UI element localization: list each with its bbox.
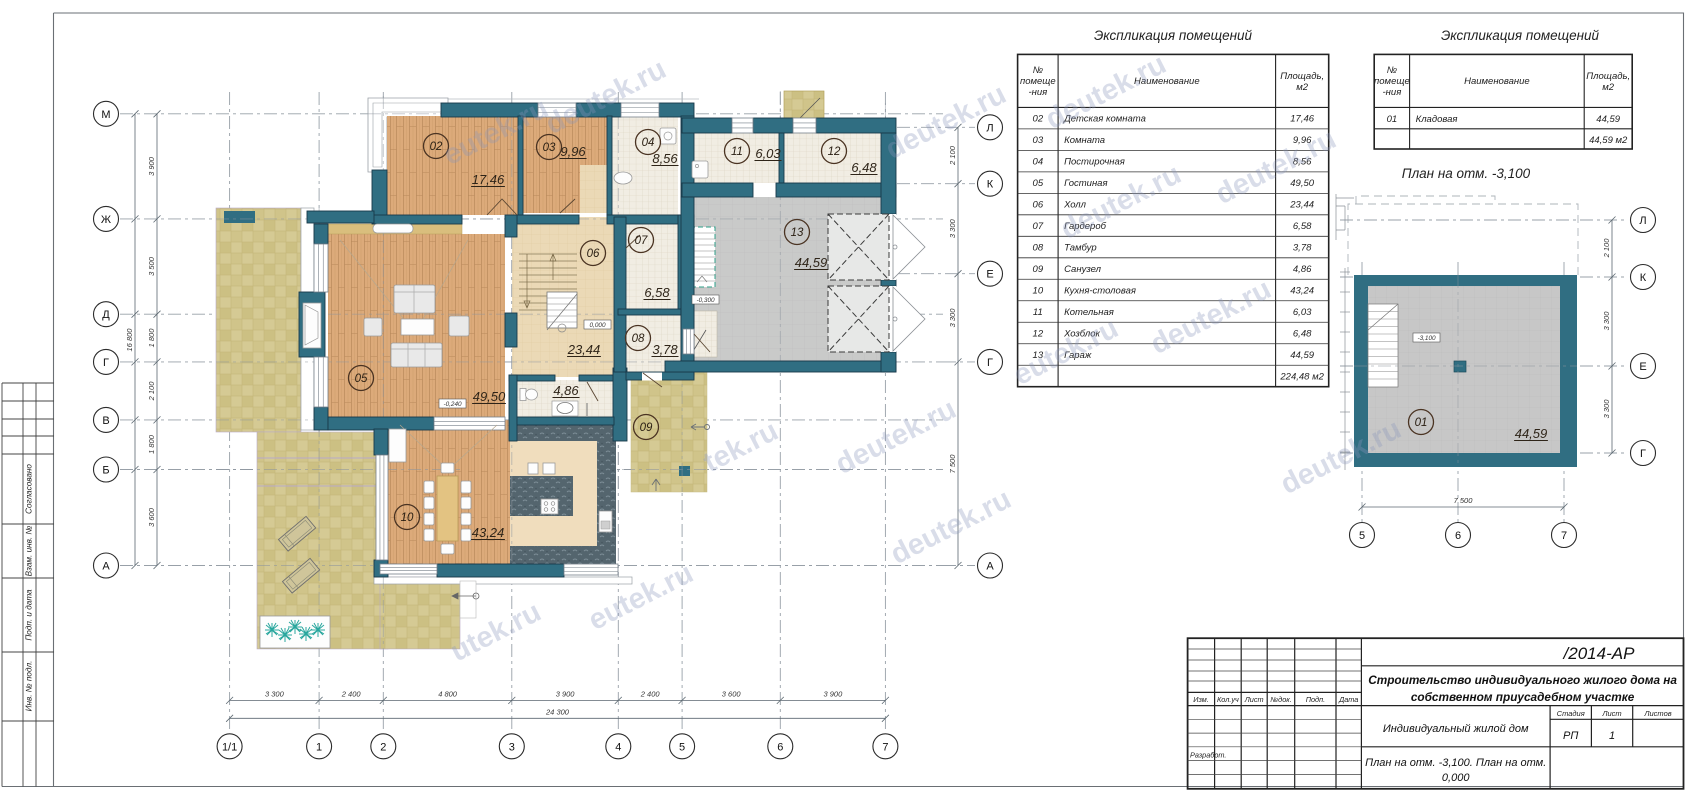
svg-text:49,50: 49,50 [1290, 178, 1314, 189]
svg-text:2 400: 2 400 [640, 690, 661, 699]
svg-text:9,96: 9,96 [560, 144, 586, 159]
svg-text:Ж: Ж [101, 214, 111, 226]
svg-text:09: 09 [640, 422, 653, 434]
svg-text:К: К [1640, 272, 1647, 284]
svg-text:Стадия: Стадия [1557, 709, 1585, 718]
svg-text:7 500: 7 500 [1454, 496, 1474, 505]
svg-text:Кол.уч: Кол.уч [1217, 695, 1239, 704]
svg-text:-0,240: -0,240 [443, 401, 462, 408]
svg-text:16 800: 16 800 [125, 328, 134, 352]
svg-text:8,56: 8,56 [652, 151, 678, 166]
svg-text:03: 03 [1033, 135, 1044, 146]
svg-text:06: 06 [1033, 200, 1044, 211]
svg-text:4,86: 4,86 [1293, 264, 1312, 275]
svg-text:Лист: Лист [1244, 695, 1264, 704]
svg-text:Экспликация помещений: Экспликация помещений [1094, 28, 1253, 43]
svg-text:2: 2 [380, 741, 386, 753]
svg-text:17,46: 17,46 [1290, 114, 1314, 125]
svg-text:2 100: 2 100 [1602, 238, 1611, 259]
svg-text:Комната: Комната [1064, 135, 1105, 146]
svg-text:помеще: помеще [1374, 76, 1410, 87]
svg-text:3 900: 3 900 [556, 690, 576, 699]
svg-text:1: 1 [316, 741, 322, 753]
svg-text:3 500: 3 500 [147, 256, 156, 276]
svg-text:3,78: 3,78 [1293, 243, 1312, 254]
svg-text:Инв. № подл.: Инв. № подл. [25, 661, 34, 712]
svg-text:Санузел: Санузел [1064, 264, 1102, 275]
svg-text:04: 04 [642, 137, 655, 149]
svg-text:Е: Е [986, 269, 993, 281]
svg-text:07: 07 [635, 235, 648, 247]
svg-text:5: 5 [1359, 530, 1365, 542]
svg-text:/2014-АР: /2014-АР [1563, 644, 1636, 663]
svg-text:№: № [1387, 65, 1397, 76]
svg-text:Взам. инв. №: Взам. инв. № [25, 526, 34, 577]
svg-text:5: 5 [679, 741, 685, 753]
svg-text:Подп.: Подп. [1306, 695, 1325, 704]
svg-text:01: 01 [1415, 417, 1428, 429]
svg-text:Лист: Лист [1601, 709, 1621, 718]
svg-text:3 300: 3 300 [948, 308, 957, 328]
svg-text:23,44: 23,44 [1289, 200, 1314, 211]
svg-text:224,48 м2: 224,48 м2 [1279, 371, 1324, 382]
svg-text:Гостиная: Гостиная [1064, 178, 1107, 189]
svg-text:План на отм. -3,100: План на отм. -3,100 [1402, 166, 1531, 181]
svg-text:1 800: 1 800 [147, 434, 156, 454]
svg-text:07: 07 [1033, 221, 1044, 232]
svg-text:12: 12 [828, 146, 841, 158]
svg-text:Площадь,: Площадь, [1280, 71, 1324, 82]
svg-text:Листов: Листов [1643, 709, 1671, 718]
svg-text:№док.: №док. [1270, 695, 1291, 704]
svg-text:6,58: 6,58 [1293, 221, 1312, 232]
svg-text:43,24: 43,24 [472, 525, 505, 540]
svg-text:Л: Л [986, 122, 993, 134]
svg-text:Площадь,: Площадь, [1586, 71, 1630, 82]
svg-text:0,000: 0,000 [1442, 772, 1470, 784]
svg-text:3 900: 3 900 [824, 690, 844, 699]
svg-text:09: 09 [1033, 264, 1044, 275]
svg-text:3 600: 3 600 [147, 507, 156, 527]
svg-text:4: 4 [615, 741, 621, 753]
svg-text:12: 12 [1033, 328, 1044, 339]
svg-text:06: 06 [587, 248, 600, 260]
svg-text:02: 02 [1033, 114, 1044, 125]
svg-text:3 300: 3 300 [1602, 399, 1611, 419]
svg-text:План на отм. -3,100. План на о: План на отм. -3,100. План на отм. [1365, 757, 1546, 769]
svg-text:43,24: 43,24 [1290, 286, 1314, 297]
svg-text:Е: Е [1639, 361, 1646, 373]
svg-text:Б: Б [102, 465, 109, 477]
svg-text:44,59: 44,59 [1596, 114, 1620, 125]
svg-text:11: 11 [1033, 307, 1043, 318]
svg-text:Разработ.: Разработ. [1190, 751, 1226, 760]
svg-text:17,46: 17,46 [472, 172, 505, 187]
svg-text:4,86: 4,86 [553, 383, 579, 398]
svg-text:2 100: 2 100 [948, 145, 957, 166]
svg-text:Л: Л [1639, 215, 1646, 227]
svg-text:Изм.: Изм. [1193, 695, 1209, 704]
svg-text:44,59: 44,59 [795, 255, 828, 270]
svg-text:3: 3 [509, 741, 515, 753]
svg-text:Г: Г [1640, 448, 1646, 460]
svg-text:7: 7 [882, 741, 888, 753]
svg-text:Дата: Дата [1338, 695, 1358, 704]
svg-text:6,48: 6,48 [851, 160, 877, 175]
svg-text:Кладовая: Кладовая [1416, 114, 1458, 125]
svg-text:24 300: 24 300 [545, 708, 570, 717]
svg-text:м2: м2 [1296, 82, 1309, 93]
svg-text:0,000: 0,000 [590, 322, 606, 329]
svg-text:Д: Д [102, 309, 110, 321]
svg-text:10: 10 [401, 512, 414, 524]
svg-text:3 300: 3 300 [948, 218, 957, 238]
svg-text:К: К [987, 179, 994, 191]
svg-text:08: 08 [632, 333, 645, 345]
svg-text:44,59: 44,59 [1290, 350, 1314, 361]
svg-text:7: 7 [1561, 530, 1567, 542]
svg-text:Г: Г [987, 357, 993, 369]
svg-text:10: 10 [1033, 286, 1044, 297]
svg-text:3 900: 3 900 [147, 156, 156, 176]
svg-text:РП: РП [1563, 730, 1578, 742]
svg-text:М: М [101, 109, 110, 121]
svg-text:23,44: 23,44 [567, 342, 601, 357]
svg-text:-3,100: -3,100 [1417, 335, 1436, 342]
svg-text:м2: м2 [1602, 82, 1615, 93]
svg-text:Индивидуальный жилой дом: Индивидуальный жилой дом [1383, 723, 1529, 735]
svg-text:Экспликация помещений: Экспликация помещений [1441, 28, 1600, 43]
svg-text:Наименование: Наименование [1464, 76, 1530, 87]
svg-text:6,03: 6,03 [755, 146, 781, 161]
svg-text:Г: Г [103, 357, 109, 369]
svg-text:4 800: 4 800 [438, 690, 458, 699]
svg-text:-0,300: -0,300 [696, 297, 715, 304]
svg-text:49,50: 49,50 [473, 389, 506, 404]
svg-text:2 100: 2 100 [147, 381, 156, 402]
svg-text:В: В [102, 415, 109, 427]
svg-text:3 300: 3 300 [265, 690, 285, 699]
svg-text:Постирочная: Постирочная [1064, 157, 1125, 168]
svg-text:3 300: 3 300 [1602, 311, 1611, 331]
svg-text:13: 13 [791, 227, 804, 239]
svg-text:-ния: -ния [1028, 87, 1047, 98]
svg-text:6: 6 [1455, 530, 1461, 542]
svg-text:6,03: 6,03 [1293, 307, 1312, 318]
svg-text:05: 05 [1033, 178, 1044, 189]
svg-text:-ния: -ния [1383, 87, 1402, 98]
svg-text:1: 1 [1609, 730, 1615, 742]
svg-text:2 400: 2 400 [341, 690, 362, 699]
svg-text:04: 04 [1033, 157, 1044, 168]
svg-text:А: А [986, 561, 994, 573]
svg-text:3,78: 3,78 [652, 342, 678, 357]
svg-text:03: 03 [543, 142, 556, 154]
svg-text:01: 01 [1387, 114, 1398, 125]
svg-text:3 600: 3 600 [722, 690, 742, 699]
svg-text:44,59: 44,59 [1515, 426, 1548, 441]
svg-text:08: 08 [1033, 243, 1044, 254]
svg-text:Подп. и дата: Подп. и дата [25, 589, 34, 641]
svg-text:№: № [1033, 65, 1043, 76]
svg-text:собственном приусадебном участ: собственном приусадебном участке [1411, 690, 1635, 704]
svg-text:6,48: 6,48 [1293, 328, 1312, 339]
svg-text:6: 6 [777, 741, 783, 753]
svg-text:А: А [102, 561, 110, 573]
svg-text:1/1: 1/1 [222, 741, 237, 753]
svg-text:1 800: 1 800 [147, 328, 156, 348]
svg-text:7 500: 7 500 [948, 454, 957, 474]
svg-text:помеще: помеще [1020, 76, 1056, 87]
svg-text:Строительство индивидуального: Строительство индивидуального жилого дом… [1368, 673, 1677, 687]
svg-text:Кухня-столовая: Кухня-столовая [1064, 286, 1136, 297]
svg-text:44,59 м2: 44,59 м2 [1589, 135, 1628, 146]
svg-text:11: 11 [731, 146, 743, 158]
svg-text:05: 05 [355, 373, 368, 385]
svg-text:Согласовано: Согласовано [25, 464, 34, 514]
svg-text:6,58: 6,58 [644, 285, 670, 300]
